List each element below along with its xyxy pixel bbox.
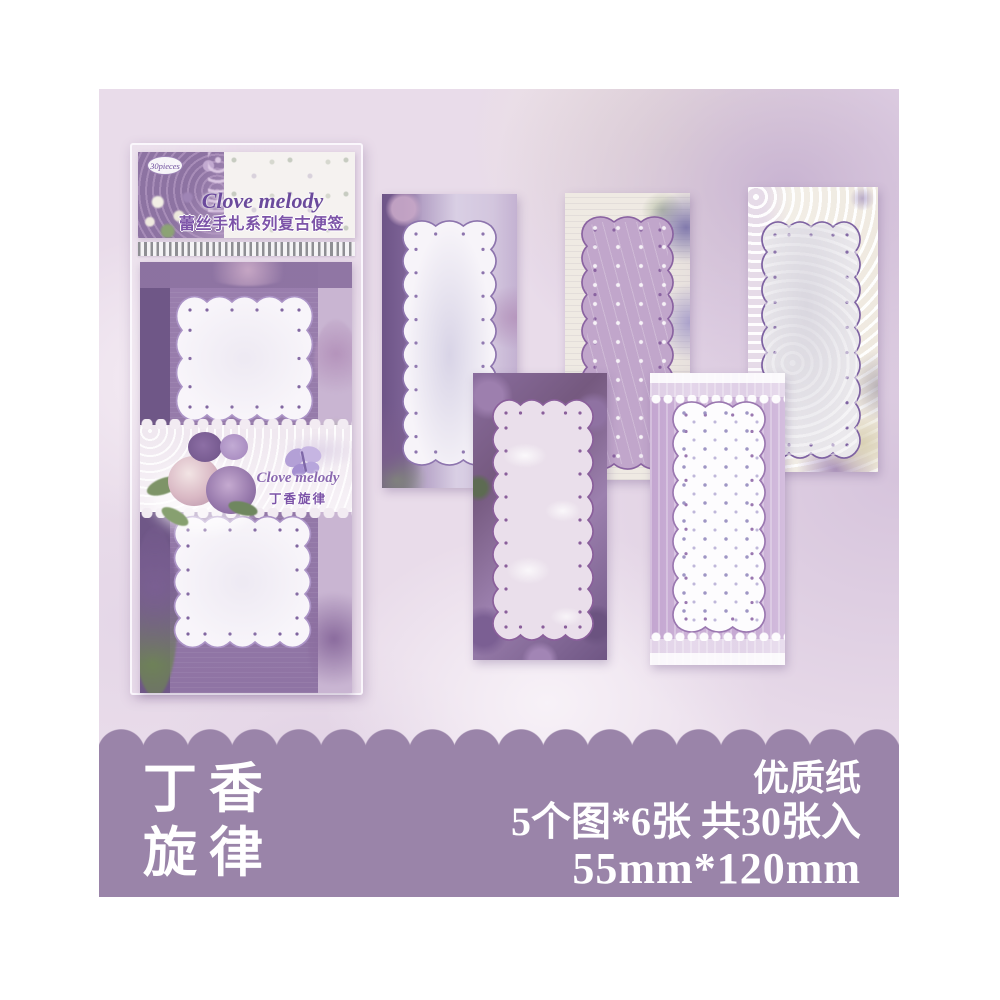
note-sample-4 [473, 373, 607, 660]
hanging-strip [138, 242, 355, 256]
paper-texture [179, 299, 310, 418]
product-name-line2: 旋律 [143, 821, 275, 885]
lace-decoration [200, 262, 296, 286]
note-panel [668, 397, 770, 637]
note-panel [488, 395, 598, 645]
spec-count: 5个图*6张 共30张入 [511, 799, 861, 845]
paper-texture [498, 405, 588, 635]
product-image: 30pieces Clove melody 蕾丝手札系列复古便签纸 [0, 0, 1000, 1000]
lilac-cluster [220, 434, 248, 460]
pieces-badge-label: 30pieces [150, 161, 180, 171]
product-specs: 优质纸 5个图*6张 共30张入 55mm*120mm [511, 757, 861, 893]
series-title: 蕾丝手札系列复古便签纸 [172, 210, 351, 238]
note-sample-5 [650, 373, 785, 665]
product-package: 30pieces Clove melody 蕾丝手札系列复古便签纸 [130, 143, 363, 695]
spec-quality: 优质纸 [511, 757, 861, 799]
product-banner: 丁香 旋律 优质纸 5个图*6张 共30张入 55mm*120mm [99, 753, 899, 897]
product-name: 丁香 旋律 [143, 757, 275, 885]
flower-decoration [314, 320, 352, 404]
label-name-text: 丁香旋律 [248, 488, 348, 507]
label-brand-text: Clove melody [248, 470, 348, 487]
note-panel-top [171, 291, 318, 426]
flower-bud [188, 432, 222, 462]
product-name-line1: 丁香 [143, 757, 275, 821]
pieces-badge: 30pieces [147, 156, 183, 175]
package-body: Clove melody 丁香旋律 [140, 262, 352, 693]
spec-size: 55mm*120mm [511, 845, 861, 893]
paper-texture [678, 407, 760, 627]
lavender-collage-background: 30pieces Clove melody 蕾丝手札系列复古便签纸 [99, 89, 899, 897]
package-label: Clove melody 丁香旋律 [248, 470, 348, 507]
package-header-card: 30pieces Clove melody 蕾丝手札系列复古便签纸 [138, 152, 355, 238]
